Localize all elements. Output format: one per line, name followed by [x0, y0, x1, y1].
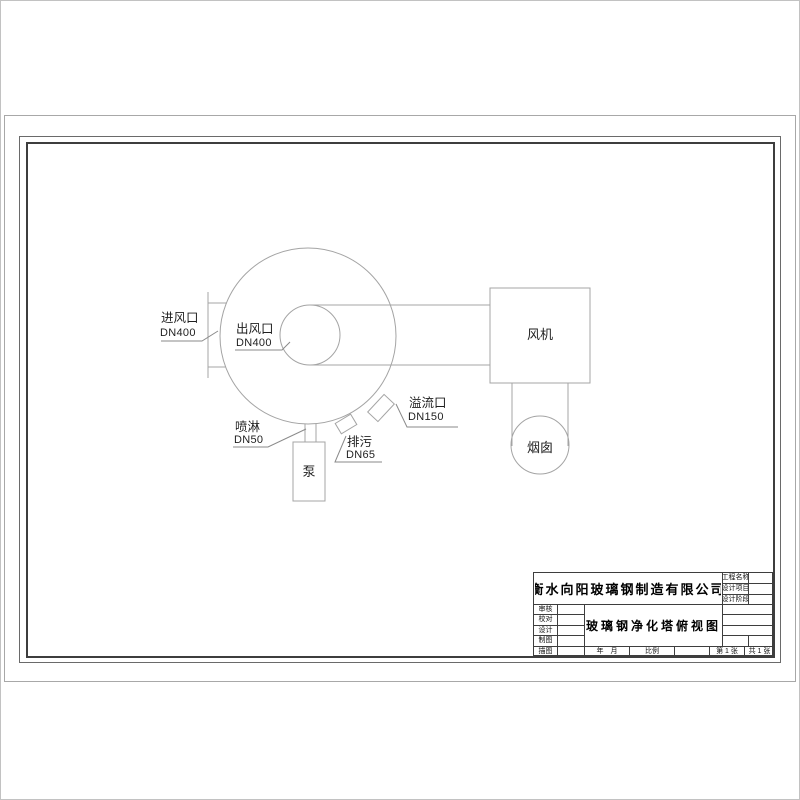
outlet-label: 出风口: [236, 323, 274, 336]
review-label: 审核: [534, 605, 557, 614]
tower-top-circle: [220, 248, 396, 424]
spray-label: 喷淋: [235, 421, 260, 434]
project-name-label: 工程名称: [723, 573, 748, 583]
outlet-circle: [280, 305, 340, 365]
drain-label: 排污: [347, 436, 372, 449]
scale-label: 比例: [630, 647, 674, 657]
design-label: 设计: [534, 626, 557, 635]
proofread-label: 校对: [534, 615, 557, 625]
overflow-label: 溢流口: [409, 397, 447, 410]
pump-label: 泵: [293, 465, 325, 478]
overflow-stub: [368, 394, 395, 421]
spray-size-label: DN50: [234, 434, 263, 446]
engineering-drawing: [0, 0, 800, 800]
sheet-number-label: 第 1 张: [710, 647, 744, 657]
overflow-size-label: DN150: [408, 411, 444, 423]
design-stage-label: 设计阶段: [723, 595, 748, 604]
fan-label: 风机: [510, 328, 570, 341]
chimney-label: 烟囱: [510, 441, 570, 454]
sheet-total-label: 共 1 张: [745, 647, 774, 657]
inlet-size-label: DN400: [160, 327, 196, 339]
tracing-label: 描图: [534, 647, 557, 657]
drawing-title: 玻璃钢净化塔俯视图: [585, 605, 722, 646]
date-label: 年 月: [585, 647, 629, 657]
outlet-size-label: DN400: [236, 337, 272, 349]
drain-stub: [335, 414, 357, 434]
title-block: 衡水向阳玻璃钢制造有限公司 工程名称 设计项目 设计阶段 审核 校对 设计 制图…: [533, 572, 773, 656]
company-name: 衡水向阳玻璃钢制造有限公司: [535, 573, 721, 604]
drawing-sheet: 进风口 DN400 出风口 DN400 喷淋 DN50 排污 DN65 溢流口 …: [0, 0, 800, 800]
drafting-label: 制图: [534, 636, 557, 646]
drain-size-label: DN65: [346, 449, 375, 461]
design-project-label: 设计项目: [723, 584, 748, 594]
inlet-label: 进风口: [161, 312, 199, 325]
